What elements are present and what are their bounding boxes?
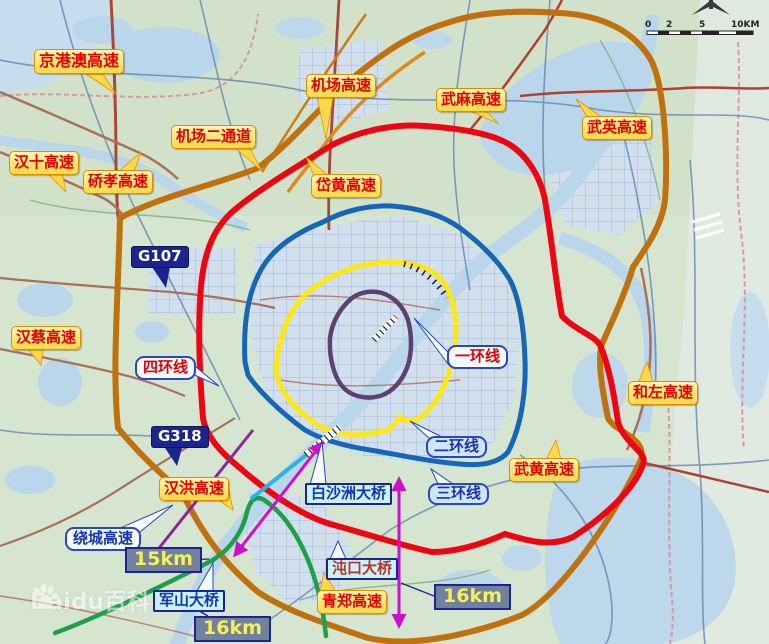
callout-fourth-ring: 四环线	[135, 356, 196, 380]
scale-tick-0: 0	[645, 20, 651, 30]
tag-g107: G107	[131, 246, 189, 268]
scale-bar	[647, 31, 753, 35]
scale-tick-5: 5	[699, 20, 705, 30]
callout-qiaoxiao-expressway: 硚孝高速	[83, 170, 153, 194]
callout-hanhong-expressway: 汉洪高速	[159, 477, 229, 501]
callout-jinggangao-expressway: 京港澳高速	[34, 49, 124, 74]
callout-third-ring: 三环线	[428, 483, 489, 505]
callout-second-ring: 二环线	[426, 436, 487, 458]
callout-wuhuang-expressway: 武黄高速	[509, 458, 579, 482]
wuhan-ring-road-map: 京港澳高速 汉十高速 硚孝高速 机场二通道 机场高速 岱黄高速 武麻高速 武英高…	[0, 0, 769, 644]
callout-first-ring: 一环线	[447, 345, 508, 369]
label-zhuankou-bridge: 沌口大桥	[326, 558, 398, 580]
callout-hancai-expressway: 汉蔡高速	[11, 326, 81, 350]
label-junshan-bridge: 军山大桥	[153, 590, 225, 612]
distance-box-15km: 15km	[125, 547, 202, 573]
callout-wuma-expressway: 武麻高速	[436, 88, 506, 112]
baidu-paw-icon	[30, 582, 60, 612]
callout-airport-second-channel: 机场二通道	[171, 125, 256, 149]
callout-hanshi-expressway: 汉十高速	[9, 151, 79, 175]
scale-tick-2: 2	[666, 20, 672, 30]
scale-tick-10km: 10KM	[731, 20, 759, 30]
baidu-watermark: Baidu百科	[30, 582, 150, 616]
callout-qingzheng-expressway: 青郑高速	[317, 590, 387, 614]
callout-wuying-expressway: 武英高速	[582, 116, 652, 140]
distance-box-16km-south: 16km	[194, 616, 271, 642]
callout-hezuo-expressway: 和左高速	[628, 381, 698, 405]
tag-g318: G318	[151, 426, 209, 448]
label-baishazhou-bridge: 白沙洲大桥	[305, 483, 392, 505]
callout-daihuang-expressway: 岱黄高速	[311, 174, 381, 198]
callout-airport-expressway: 机场高速	[306, 74, 376, 98]
distance-box-16km-east: 16km	[434, 584, 511, 610]
